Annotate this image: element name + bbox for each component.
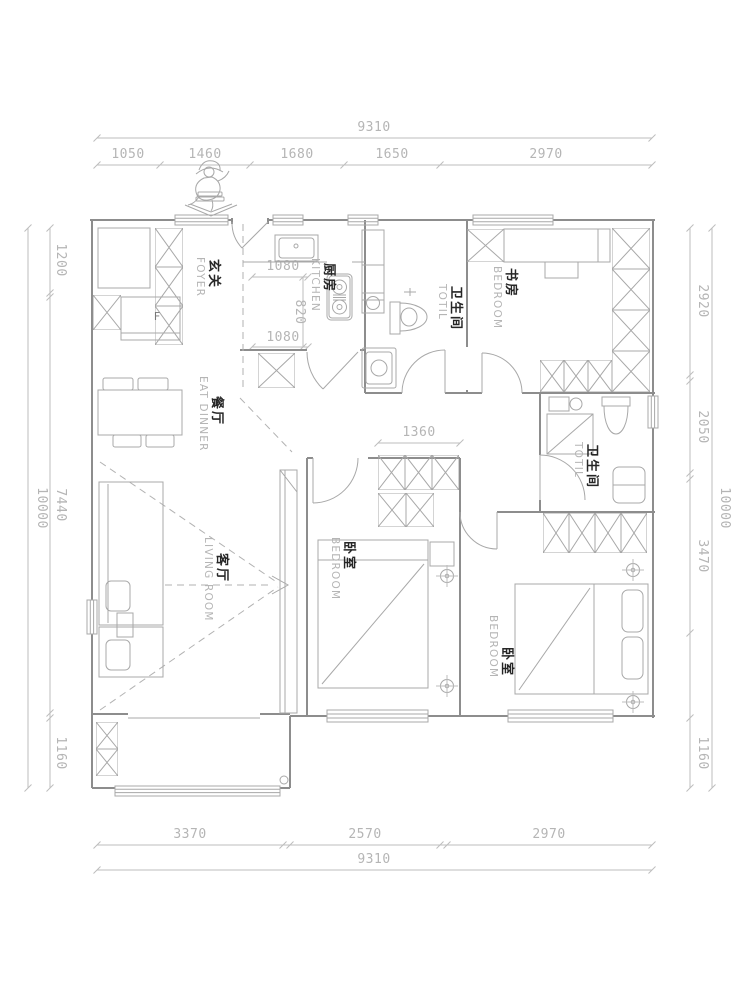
toilet-2 [602,397,630,434]
dim-text-dims-right_overall: 10000 [717,487,732,529]
bedroom-mid-label-en: BEDROOM [329,537,341,600]
living-label-zh: 客厅 [214,553,230,583]
toilet [390,288,427,334]
window-bottom-bedroom-right [508,710,613,722]
dim-text-dims-left_segments-0: 1200 [53,243,68,276]
bedroom-mid-label-zh: 卧室 [341,541,357,571]
bath1-fixtures [362,230,427,388]
bedroom-right-door [460,512,497,549]
window-bottom-bedroom-mid [327,710,428,722]
study-door [482,353,522,393]
floor-plan-drawing: 9310105014601680165029703370257029709310… [0,0,740,1000]
bedroom-right-label-en: BEDROOM [487,615,499,678]
dim-text-dims-top_segments-3: 1650 [375,147,408,162]
dim-text-dims-left_overall: 10000 [34,487,49,529]
bedroom-right-furniture [515,513,648,713]
floor-plan-canvas: 9310105014601680165029703370257029709310… [0,0,740,1000]
foyer-label-zh: 玄关 [206,259,222,289]
bath1-label-en: TOTIL [436,283,448,320]
sofa [99,482,163,677]
living-furniture [99,470,297,713]
kitchen-door [307,352,358,389]
dim-text-dims-left_segments-1: 7440 [53,488,68,521]
bedroom-right-label-zh: 卧室 [499,647,515,677]
window-right-bath [648,396,658,428]
living-label-en: LIVING ROOM [202,537,214,622]
dim-text-dims-right_segments-0: 2920 [695,284,710,317]
dim-text-dims-bottom_overall: 9310 [357,852,390,867]
refrigerator: F [121,297,180,340]
dim-text-dims-top_segments-1: 1460 [188,147,221,162]
bed-right [515,584,648,694]
room-labels: 玄关 FOYER 厨房 KITCHEN 卫生间 TOTIL 书房 BEDROOM… [194,257,600,678]
bath2-label-en: TOTIL [572,441,584,478]
dim-text-dims-right_segments-1: 2050 [695,410,710,443]
dim-text-dims-kitchen_depth: 820 [292,300,307,325]
entry-arrow-icon [185,204,237,216]
entry-door [232,222,268,248]
dim-text-dims-right_segments-2: 3470 [695,539,710,572]
study-label-zh: 书房 [503,268,519,298]
dim-text-dims-bottom_segments-0: 3370 [173,827,206,842]
dining-label-zh: 餐厅 [209,395,225,426]
room-label-foyer: 玄关 FOYER [194,257,222,297]
dim-text-dims-top_segments-2: 1680 [280,147,313,162]
dining-label-en: EAT DINNER [197,376,209,452]
kitchen-label-en: KITCHEN [309,258,321,312]
window-top-2 [273,215,303,225]
washing-machine [362,348,396,388]
dim-text-dims-left_segments-2: 1160 [53,736,68,769]
dim-text-dims-top_overall: 9310 [357,120,390,135]
tv-wall [280,470,297,713]
room-label-bath2: 卫生间 TOTIL [572,441,600,489]
windows [87,215,658,796]
room-label-bedroom-mid: 卧室 BEDROOM [329,537,357,600]
entry-marker [185,161,237,216]
bath1-door [402,350,445,393]
foyer-label-en: FOYER [194,257,206,297]
room-label-living: 客厅 LIVING ROOM [202,537,230,622]
dim-text-dims-wardrobe_width: 1360 [402,425,435,440]
study-label-en: BEDROOM [491,266,503,329]
dim-text-dims-bottom_segments-1: 2570 [348,827,381,842]
room-label-dining: 餐厅 EAT DINNER [197,376,225,452]
walls [90,218,655,788]
dim-text-dims-top_segments-0: 1050 [111,147,144,162]
window-balcony [115,786,280,796]
window-top-4 [473,215,553,225]
window-left [87,600,97,634]
kitchen-label-zh: 厨房 [321,263,337,293]
person-figure-icon [188,161,229,211]
bath2-label-zh: 卫生间 [584,444,600,489]
dim-text-dims-right_segments-3: 1160 [695,736,710,769]
balcony-furniture [96,722,288,784]
room-label-study: 书房 BEDROOM [491,266,519,329]
room-label-bedroom-right: 卧室 BEDROOM [487,615,515,678]
window-top-1 [175,215,228,225]
dining-furniture [98,378,182,447]
fridge-label: F [154,310,160,323]
bedroom-mid-door [313,458,358,503]
dim-text-dims-top_segments-4: 2970 [529,147,562,162]
room-label-bath1: 卫生间 TOTIL [436,283,464,331]
bath1-label-zh: 卫生间 [448,286,464,331]
dim-text-dims-kitchen_width_bottom: 1080 [266,330,299,345]
dim-text-dims-bottom_segments-2: 2970 [532,827,565,842]
foyer-furniture: F [93,228,183,345]
window-top-3 [348,215,378,225]
